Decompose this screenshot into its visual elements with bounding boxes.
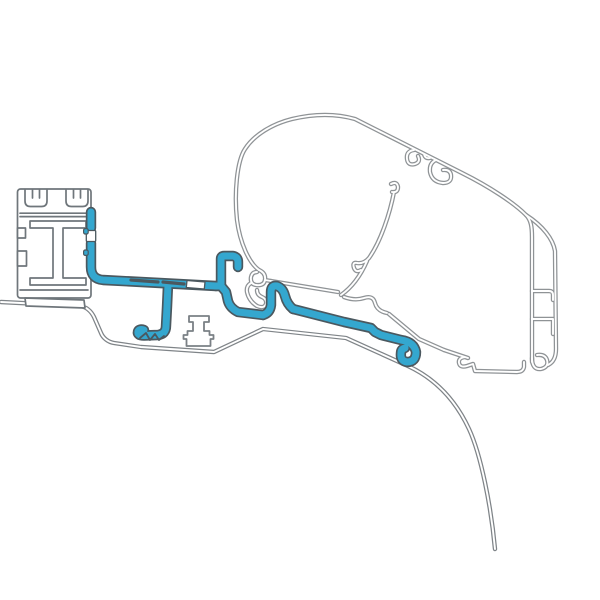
case-arc-core <box>236 115 532 362</box>
case-lead-rail-channel-core <box>444 350 524 372</box>
rail-side-notch-lower <box>18 251 27 266</box>
case-arc-outer <box>236 115 532 362</box>
rail-bottom-lip <box>25 298 85 308</box>
diagram-canvas <box>0 0 600 600</box>
awning-adapter-cross-section-diagram <box>0 0 600 600</box>
adapter-band-gap <box>186 281 205 290</box>
case-rib-connector-mid-core <box>532 319 553 334</box>
case-internal-rib <box>341 183 398 313</box>
case-rib-connector-upper <box>532 291 553 300</box>
case-internal-rib-core <box>341 183 398 313</box>
case-rib-connector-mid <box>532 319 553 334</box>
adapter-main-band <box>91 243 216 286</box>
adapter-strip-nub-upper <box>84 229 89 234</box>
rail-side-notch-upper <box>18 228 26 238</box>
awning-rail-profile <box>18 189 92 308</box>
case-tip-link-core <box>265 280 271 281</box>
adapter-strip-nub-lower <box>84 250 89 255</box>
adapter-outline-underlay <box>91 212 416 362</box>
roof-mount-foot <box>184 316 214 346</box>
case-bottom-panel <box>271 281 444 350</box>
foot-block <box>184 316 214 346</box>
